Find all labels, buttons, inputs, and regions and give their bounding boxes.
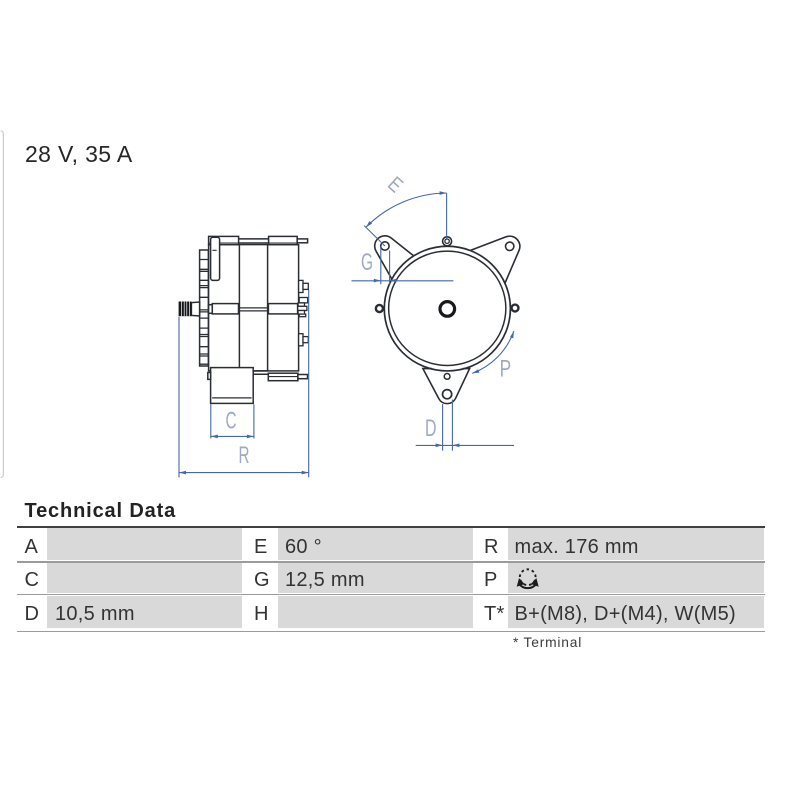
svg-text:D: D <box>425 415 437 442</box>
svg-text:P: P <box>500 355 512 382</box>
svg-text:C: C <box>226 407 237 434</box>
svg-text:R: R <box>239 442 250 469</box>
svg-text:E: E <box>383 172 407 197</box>
svg-text:G: G <box>361 249 373 276</box>
